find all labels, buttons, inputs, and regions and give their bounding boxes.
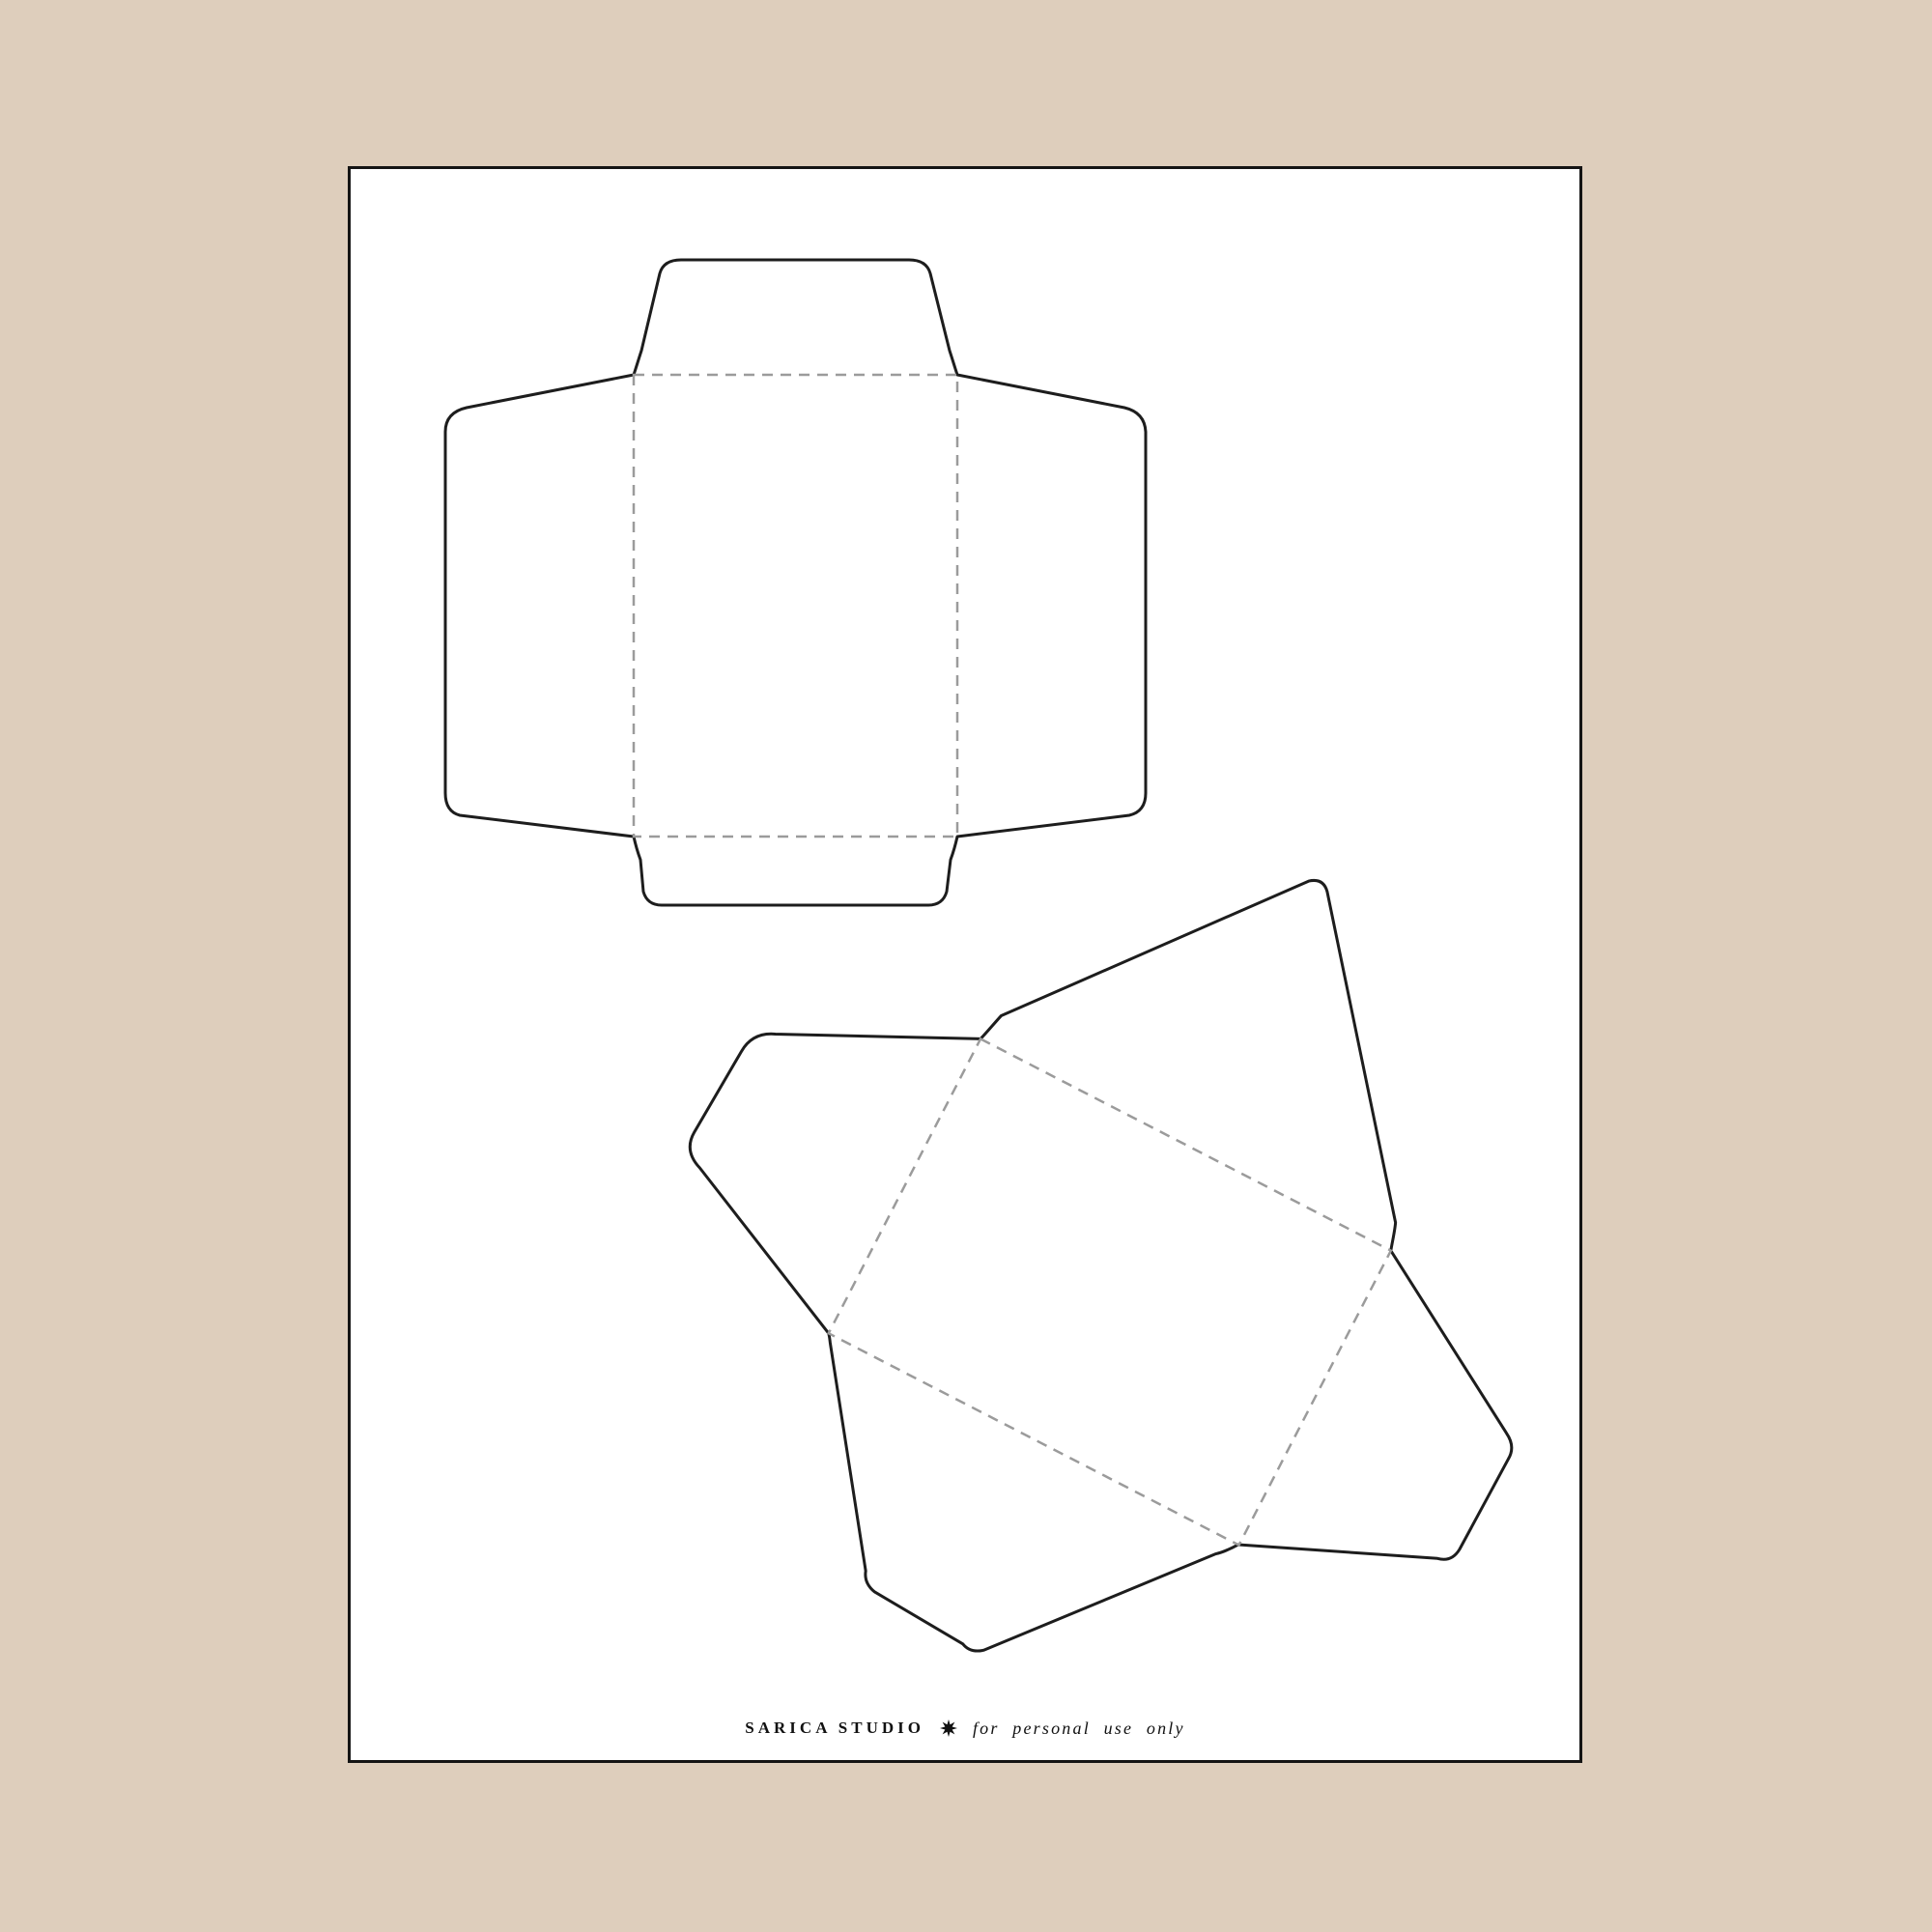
upright-cut-outline — [445, 260, 1146, 905]
eight-point-star-icon — [940, 1719, 957, 1737]
envelope-template-upright — [445, 260, 1146, 905]
brand-text: SARICA STUDIO — [745, 1719, 924, 1738]
usage-note-text: for personal use only — [973, 1719, 1185, 1739]
envelope-templates-svg — [351, 169, 1579, 1760]
template-sheet: SARICA STUDIO for personal use only — [348, 166, 1582, 1763]
footer-credit: SARICA STUDIO for personal use only — [351, 1713, 1579, 1744]
screenshot-canvas: SARICA STUDIO for personal use only — [0, 0, 1932, 1932]
